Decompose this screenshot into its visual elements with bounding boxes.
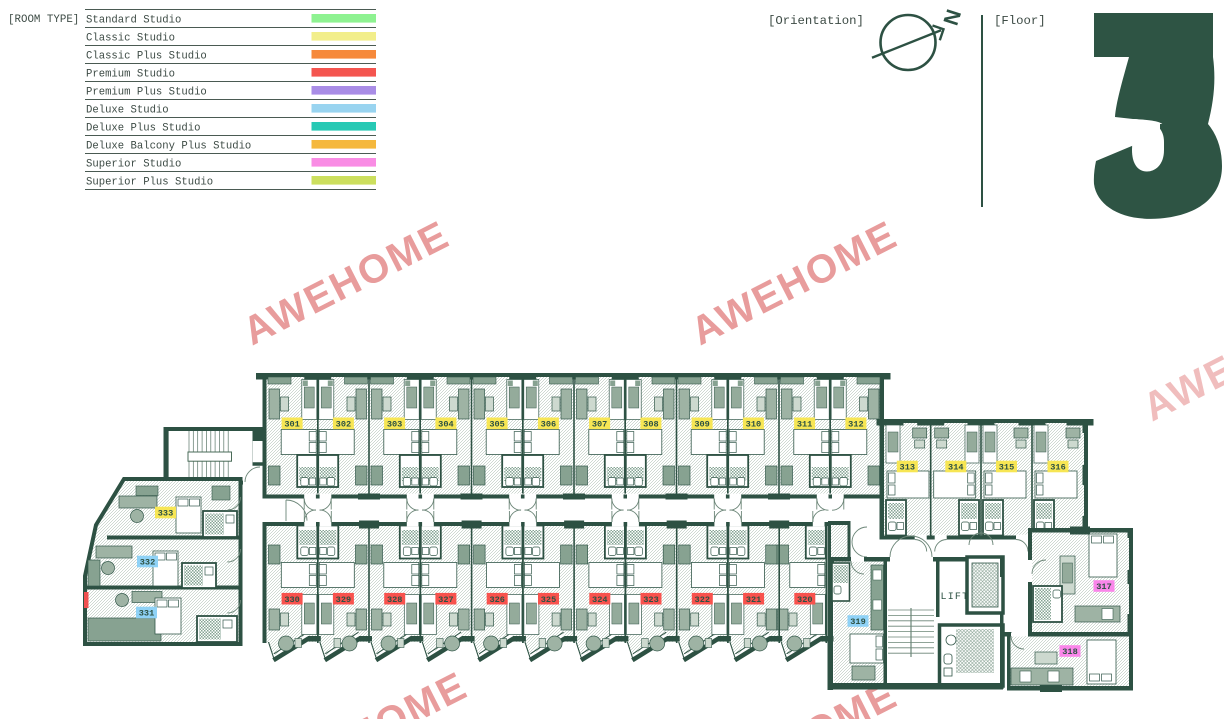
svg-text:[Orientation]: [Orientation] bbox=[768, 14, 864, 28]
svg-text:[ROOM TYPE]: [ROOM TYPE] bbox=[8, 14, 79, 26]
svg-text:330: 330 bbox=[284, 595, 299, 605]
svg-text:309: 309 bbox=[694, 419, 709, 429]
svg-text:321: 321 bbox=[746, 595, 761, 605]
svg-text:312: 312 bbox=[848, 419, 863, 429]
svg-text:324: 324 bbox=[592, 595, 607, 605]
svg-text:319: 319 bbox=[850, 617, 865, 627]
svg-text:[Floor]: [Floor] bbox=[994, 14, 1046, 28]
svg-text:AWEHOME: AWEHOME bbox=[1136, 289, 1224, 430]
svg-text:Deluxe Plus Studio: Deluxe Plus Studio bbox=[86, 123, 200, 135]
svg-text:329: 329 bbox=[336, 595, 351, 605]
svg-text:310: 310 bbox=[746, 419, 761, 429]
svg-text:327: 327 bbox=[438, 595, 453, 605]
svg-text:Standard Studio: Standard Studio bbox=[86, 15, 181, 27]
svg-text:N: N bbox=[940, 7, 967, 29]
svg-text:314: 314 bbox=[948, 463, 963, 473]
svg-text:323: 323 bbox=[643, 595, 658, 605]
svg-text:326: 326 bbox=[489, 595, 504, 605]
svg-text:AWEHOME: AWEHOME bbox=[684, 213, 905, 354]
svg-text:322: 322 bbox=[695, 595, 710, 605]
svg-text:Classic Plus Studio: Classic Plus Studio bbox=[86, 51, 207, 63]
svg-text:304: 304 bbox=[438, 419, 453, 429]
svg-text:317: 317 bbox=[1096, 582, 1111, 592]
svg-text:315: 315 bbox=[999, 463, 1014, 473]
svg-text:311: 311 bbox=[797, 419, 812, 429]
svg-text:325: 325 bbox=[541, 595, 556, 605]
svg-text:303: 303 bbox=[387, 419, 402, 429]
svg-text:318: 318 bbox=[1062, 647, 1077, 657]
svg-text:306: 306 bbox=[541, 419, 556, 429]
svg-text:332: 332 bbox=[140, 558, 155, 568]
svg-text:307: 307 bbox=[592, 419, 607, 429]
svg-text:313: 313 bbox=[900, 463, 915, 473]
svg-text:AWEHOME: AWEHOME bbox=[254, 664, 475, 719]
svg-text:331: 331 bbox=[139, 609, 154, 619]
svg-text:AWEHOME: AWEHOME bbox=[236, 213, 457, 354]
svg-text:Premium Studio: Premium Studio bbox=[86, 69, 175, 81]
svg-text:328: 328 bbox=[387, 595, 402, 605]
svg-text:316: 316 bbox=[1050, 463, 1065, 473]
svg-text:305: 305 bbox=[489, 419, 504, 429]
svg-text:Deluxe Balcony Plus Studio: Deluxe Balcony Plus Studio bbox=[86, 141, 251, 153]
svg-text:Superior Studio: Superior Studio bbox=[86, 159, 181, 171]
svg-text:308: 308 bbox=[643, 419, 658, 429]
svg-text:320: 320 bbox=[797, 595, 812, 605]
svg-text:Superior Plus Studio: Superior Plus Studio bbox=[86, 177, 213, 189]
svg-text:Premium Plus Studio: Premium Plus Studio bbox=[86, 87, 207, 99]
svg-text:Deluxe Studio: Deluxe Studio bbox=[86, 105, 169, 117]
svg-text:301: 301 bbox=[284, 419, 299, 429]
svg-text:LIFT: LIFT bbox=[941, 592, 970, 603]
svg-text:302: 302 bbox=[336, 419, 351, 429]
svg-text:333: 333 bbox=[158, 509, 173, 519]
svg-text:Classic Studio: Classic Studio bbox=[86, 33, 175, 45]
